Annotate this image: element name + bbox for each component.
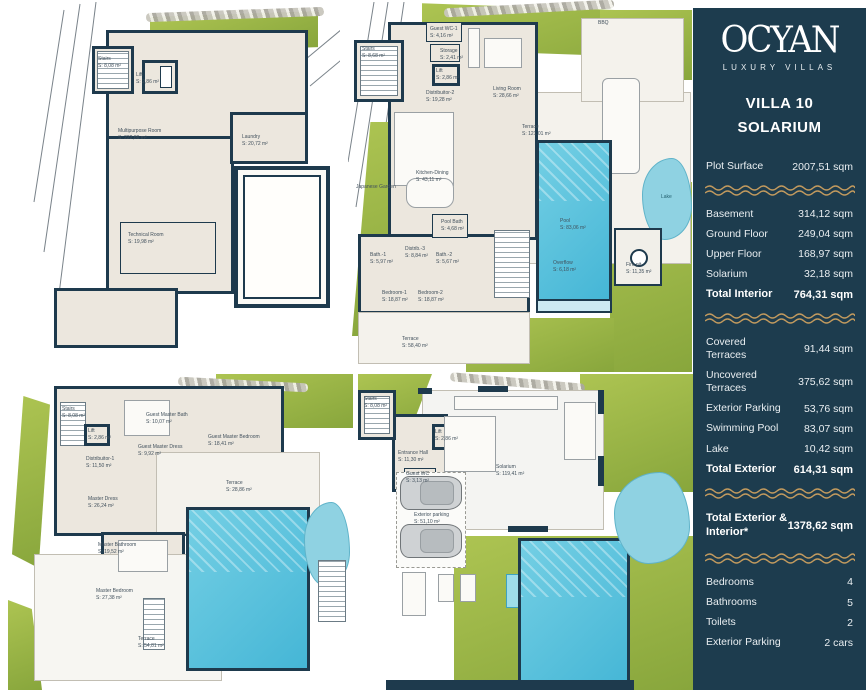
room-label: Distribuitor-2S: 19,28 m²	[426, 90, 454, 104]
wall-segment	[508, 526, 548, 532]
spec-sidebar: OCYAN LUXURY VILLAS VILLA 10 SOLARIUM Pl…	[693, 8, 866, 690]
exterior-section: Covered Terraces91,44 sqm Uncovered Terr…	[706, 332, 853, 480]
floor-area	[54, 288, 178, 348]
room-label: Guest WC-1S: 4,16 m²	[430, 26, 458, 40]
room-label: Living RoomS: 28,66 m²	[493, 86, 521, 100]
room-label: LiftS: 2,86 m²	[436, 68, 459, 82]
features-section: Bedrooms4 Bathrooms5 Toilets2 Exterior P…	[706, 572, 853, 653]
spec-row: Swimming Pool83,07 sqm	[706, 419, 853, 439]
pool-overflow	[536, 300, 612, 313]
upper-floor-plan: StairsS: 8,08 m² LiftS: 2,86 m² Guest Ma…	[8, 374, 353, 690]
villa-title-line2: SOLARIUM	[738, 116, 822, 139]
room-label: Bedroom-1S: 18,87 m²	[382, 290, 408, 304]
wave-divider	[705, 487, 855, 500]
room-label: TerraceS: 54,81 m²	[138, 636, 164, 650]
room-label: Pool BathS: 4,68 m²	[441, 219, 464, 233]
room-label: Exterior parkingS: 51,10 m²	[414, 512, 449, 526]
sun-lounger	[460, 574, 476, 602]
outdoor-counter	[402, 572, 426, 616]
ground-floor-plan: StairsS: 8,68 m² Guest WC-1S: 4,16 m² St…	[348, 2, 693, 372]
outdoor-kitchen	[454, 396, 558, 410]
pool-hatch	[189, 510, 307, 572]
stairs	[318, 560, 346, 622]
swimming-pool	[186, 507, 310, 671]
villa-title-line1: VILLA 10	[738, 92, 822, 115]
room-label: StairsS: 8,08 m²	[62, 406, 85, 420]
room-label: Guest Master BedroomS: 18,41 m²	[208, 434, 260, 448]
room-label: Entrance HallS: 11,30 m²	[398, 450, 428, 464]
wall-segment	[418, 388, 432, 394]
room-label: Master DressS: 26,24 m²	[88, 496, 118, 510]
room-label: Bath.-1S: 5,97 m²	[370, 252, 393, 266]
spec-row: Upper Floor168,97 sqm	[706, 244, 853, 264]
room-label: StorageS: 2,41 m²	[440, 48, 463, 62]
lake	[614, 472, 690, 564]
solarium-floor-plan: StairsS: 8,08 m² LiftS: 2,86 m² Entrance…	[358, 374, 693, 690]
room-label: Japanese Garden	[356, 184, 396, 191]
spec-row: Lake10,42 sqm	[706, 439, 853, 459]
room-label: Master BedroomS: 27,38 m²	[96, 588, 133, 602]
wall-segment	[598, 456, 604, 486]
sun-lounger	[438, 574, 454, 602]
spec-row: Solarium32,18 sqm	[706, 264, 853, 284]
room-label: Kitchen-DiningS: 43,11 m²	[416, 170, 449, 184]
total-exterior-row: Total Exterior614,31 sqm	[706, 459, 853, 480]
room-label: Guest Master DressS: 9,92 m²	[138, 444, 182, 458]
pool-hatch	[521, 541, 627, 597]
room-label: Distrib.-3S: 8,84 m²	[405, 246, 428, 260]
villa-title: VILLA 10 SOLARIUM	[738, 92, 822, 139]
grass-area	[12, 396, 50, 568]
spec-row: Uncovered Terraces375,62 sqm	[706, 366, 853, 399]
room-label: LiftS: 2,86 m²	[88, 428, 111, 442]
terrace	[358, 312, 530, 364]
sofa	[468, 28, 480, 68]
grand-total-row: Total Exterior & Interior* 1378,62 sqm	[706, 509, 853, 544]
room-label: Bath.-2S: 5,67 m²	[436, 252, 459, 266]
room-label: OverflowS: 6,18 m²	[553, 260, 576, 274]
room-label: Lake	[661, 194, 672, 201]
spec-row: Ground Floor249,04 sqm	[706, 224, 853, 244]
pool-excavation-inner	[243, 175, 321, 299]
lift-cab	[160, 66, 172, 88]
room-label: PoolS: 83,06 m²	[560, 218, 586, 232]
room-label: Multipurpose RoomS: 222,86 m²	[118, 128, 161, 142]
room-label: TerraceS: 58,40 m²	[402, 336, 428, 350]
wall-segment	[478, 386, 508, 392]
stairs	[494, 230, 530, 298]
total-interior-row: Total Interior764,31 sqm	[706, 285, 853, 306]
spec-row: Toilets2	[706, 613, 853, 633]
room-label: LaundryS: 20,72 m²	[242, 134, 268, 148]
technical-room	[120, 222, 216, 274]
wave-divider	[705, 312, 855, 325]
pool-hatch	[539, 143, 609, 201]
spec-row: Exterior Parking53,76 sqm	[706, 399, 853, 419]
room-label: Technical RoomS: 19,98 m²	[128, 232, 164, 246]
spec-row: Covered Terraces91,44 sqm	[706, 332, 853, 365]
brand-logo: OCYAN	[721, 21, 839, 61]
pool-excavation	[234, 166, 330, 308]
car	[400, 524, 462, 558]
spec-row: Basement314,12 sqm	[706, 204, 853, 224]
room-label: SolariumS: 119,41 m²	[496, 464, 524, 478]
fire-pit	[614, 228, 662, 286]
interior-section: Basement314,12 sqm Ground Floor249,04 sq…	[706, 204, 853, 305]
room-label: Bedroom-2S: 18,87 m²	[418, 290, 444, 304]
spec-row: Bedrooms4	[706, 572, 853, 592]
room-label: TerraceS: 28,86 m²	[226, 480, 252, 494]
lounge-set	[564, 402, 596, 460]
room-label: StairsS: 8,08 m²	[98, 56, 121, 70]
room-label: Master BathroomS: 19,52 m²	[98, 542, 136, 556]
basement-floor-plan: StairsS: 8,08 m² LiftS: 2,86 m² Multipur…	[18, 2, 340, 352]
swimming-pool	[518, 538, 630, 690]
wave-divider	[705, 552, 855, 565]
room-label: TerraceS: 121,01 m²	[522, 124, 551, 138]
brand-tagline: LUXURY VILLAS	[723, 63, 837, 72]
room-label: Distribuitor-1S: 11,50 m²	[86, 456, 114, 470]
plot-surface-row: Plot Surface 2007,51 sqm	[706, 157, 853, 177]
room-label: LiftS: 2,86 m²	[435, 429, 458, 443]
room-label: Guest Master BathS: 10,07 m²	[146, 412, 188, 426]
wave-divider	[705, 184, 855, 197]
room-label: StairsS: 8,08 m²	[364, 396, 387, 410]
room-label: BBQ	[598, 20, 609, 27]
spec-row: Bathrooms5	[706, 593, 853, 613]
room-label: Guest WCS: 3,13 m²	[406, 471, 429, 485]
room-label: LiftS: 2,86 m²	[136, 72, 159, 86]
room-label: Fire pitS: 11,35 m²	[626, 262, 651, 276]
spec-row: Exterior Parking2 cars	[706, 633, 853, 653]
dining-table	[444, 416, 496, 472]
living-room-rug	[484, 38, 522, 68]
brochure-page: StairsS: 8,08 m² LiftS: 2,86 m² Multipur…	[0, 0, 866, 690]
room-label: StairsS: 8,68 m²	[362, 46, 385, 60]
stairs-room	[92, 46, 134, 94]
wall-segment	[598, 390, 604, 414]
retaining-wall	[386, 680, 634, 690]
